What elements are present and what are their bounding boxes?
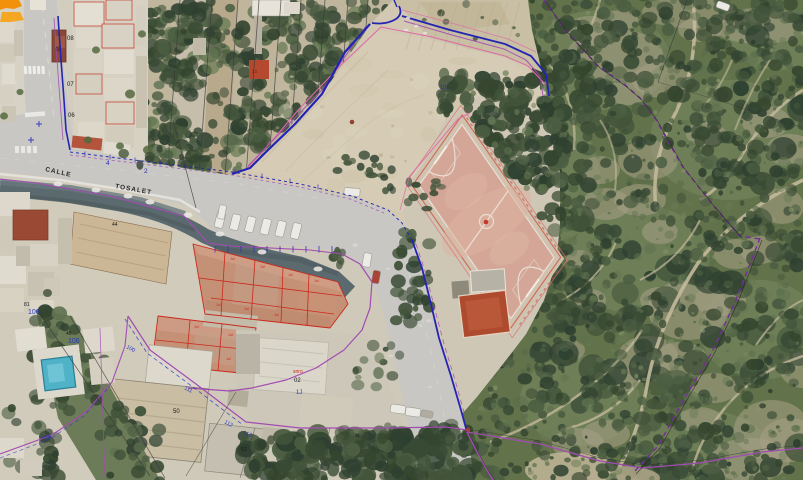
svg-text:Jul: Jul: [274, 313, 279, 317]
svg-text:snro: snro: [293, 369, 303, 375]
svg-text:Jul: Jul: [230, 257, 235, 261]
svg-text:Jul: Jul: [260, 265, 265, 269]
svg-text:50: 50: [173, 409, 180, 415]
svg-text:Jul: Jul: [288, 273, 293, 277]
svg-text:106: 106: [28, 309, 40, 316]
svg-text:06: 06: [68, 113, 75, 119]
svg-text:Jul: Jul: [228, 333, 233, 337]
svg-text:Jul: Jul: [216, 303, 221, 307]
svg-text:2: 2: [144, 168, 148, 175]
svg-text:81: 81: [24, 302, 30, 308]
svg-text:106: 106: [68, 338, 80, 345]
svg-text:1J: 1J: [296, 390, 302, 396]
svg-text:101: 101: [440, 85, 449, 91]
svg-text:Jul: Jul: [226, 357, 231, 361]
svg-text:08: 08: [67, 36, 74, 42]
svg-text:51: 51: [241, 447, 247, 453]
svg-text:Jul: Jul: [194, 325, 199, 329]
svg-text:46: 46: [66, 331, 72, 337]
svg-text:Jul: Jul: [314, 279, 319, 283]
svg-text:4: 4: [106, 160, 110, 167]
svg-text:23: 23: [252, 69, 258, 74]
svg-text:Jul: Jul: [244, 307, 249, 311]
svg-text:44: 44: [112, 222, 118, 228]
svg-text:02: 02: [294, 378, 301, 384]
svg-text:07: 07: [67, 82, 74, 88]
svg-text:st: st: [355, 433, 360, 439]
